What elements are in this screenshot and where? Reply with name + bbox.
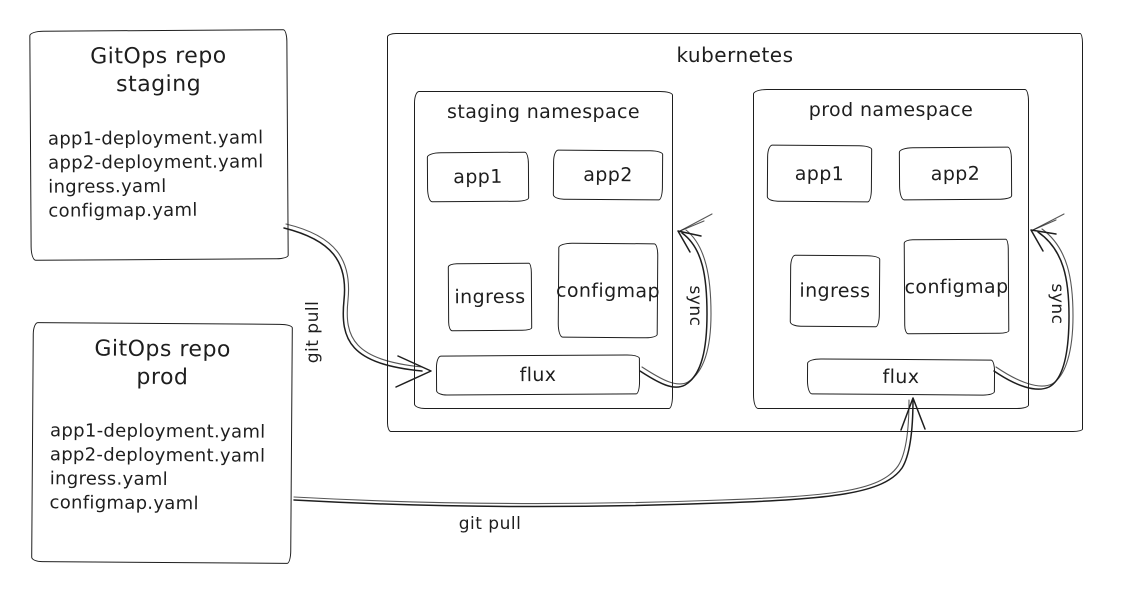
yaml-file-item: ingress.yaml [48, 174, 287, 199]
prod-app1-box: app1 [767, 145, 872, 203]
yaml-file-item: app1-deployment.yaml [48, 126, 287, 151]
sync-label-prod: sync [1047, 283, 1067, 324]
staging-flux-box: flux [436, 354, 640, 395]
prod-ingress-box: ingress [790, 255, 881, 328]
staging-namespace-box: staging namespace app1 app2 ingress conf… [414, 91, 673, 409]
staging-configmap-label: configmap [556, 279, 660, 302]
staging-configmap-box: configmap [558, 243, 659, 339]
prod-flux-label: flux [882, 366, 919, 388]
prod-app2-label: app2 [931, 162, 981, 184]
staging-app1-label: app1 [453, 166, 503, 188]
sync-label-staging: sync [685, 285, 705, 326]
staging-app2-box: app2 [553, 150, 663, 201]
prod-flux-box: flux [807, 358, 995, 395]
yaml-file-item: app2-deployment.yaml [50, 443, 291, 469]
repo-prod-file-list: app1-deployment.yaml app2-deployment.yam… [32, 419, 291, 517]
gitops-repo-prod-box: GitOps repo prod app1-deployment.yaml ap… [31, 322, 293, 564]
kubernetes-cluster-box: kubernetes staging namespace app1 app2 i… [387, 33, 1083, 432]
staging-app1-box: app1 [427, 152, 529, 203]
repo-staging-title: GitOps repo staging [30, 30, 286, 100]
yaml-file-item: configmap.yaml [48, 198, 287, 223]
git-pull-label-staging: git pull [303, 301, 323, 364]
staging-ingress-box: ingress [448, 263, 532, 332]
repo-prod-title-line2: prod [33, 363, 291, 393]
staging-app2-label: app2 [583, 164, 633, 186]
repo-staging-title-line2: staging [31, 70, 287, 100]
staging-flux-label: flux [519, 364, 556, 386]
repo-prod-title-line1: GitOps repo [34, 335, 292, 365]
prod-app2-box: app2 [899, 147, 1012, 201]
prod-configmap-label: configmap [904, 275, 1008, 298]
git-pull-label-prod: git pull [459, 514, 522, 534]
repo-staging-file-list: app1-deployment.yaml app2-deployment.yam… [31, 126, 288, 224]
yaml-file-item: app1-deployment.yaml [50, 419, 291, 445]
staging-ingress-label: ingress [454, 286, 525, 308]
prod-namespace-box: prod namespace app1 app2 ingress configm… [753, 89, 1029, 409]
kubernetes-title: kubernetes [388, 43, 1082, 67]
staging-namespace-title: staging namespace [415, 101, 672, 123]
yaml-file-item: configmap.yaml [49, 491, 290, 517]
repo-prod-title: GitOps repo prod [33, 323, 291, 393]
prod-configmap-box: configmap [904, 239, 1010, 335]
repo-staging-title-line1: GitOps repo [30, 42, 286, 72]
gitops-repo-staging-box: GitOps repo staging app1-deployment.yaml… [29, 29, 288, 261]
diagram-canvas: GitOps repo staging app1-deployment.yaml… [0, 0, 1128, 605]
yaml-file-item: app2-deployment.yaml [48, 150, 287, 175]
prod-app1-label: app1 [795, 162, 845, 184]
prod-ingress-label: ingress [799, 280, 870, 302]
yaml-file-item: ingress.yaml [50, 467, 291, 493]
prod-namespace-title: prod namespace [754, 99, 1028, 121]
